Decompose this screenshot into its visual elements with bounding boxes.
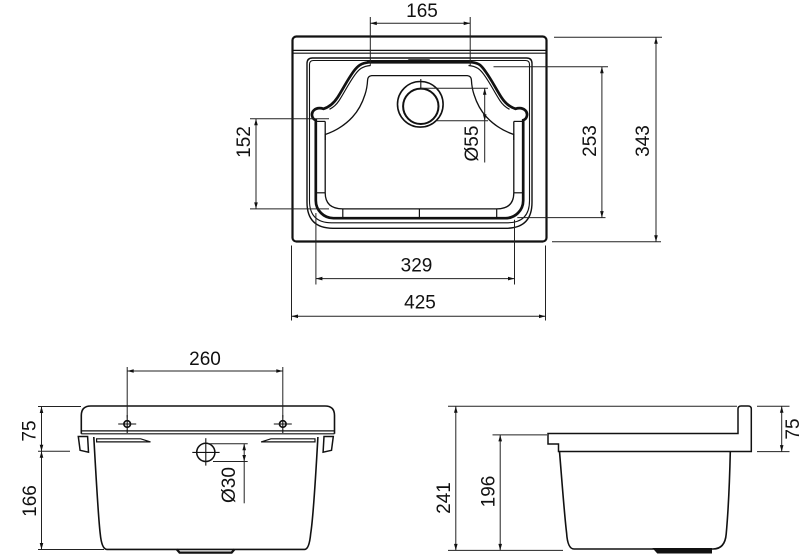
svg-text:241: 241 [434, 482, 455, 514]
svg-text:Ø30: Ø30 [219, 467, 240, 503]
svg-text:343: 343 [633, 125, 654, 157]
svg-text:329: 329 [401, 256, 433, 277]
svg-text:152: 152 [234, 126, 255, 158]
svg-text:75: 75 [19, 420, 40, 441]
svg-text:75: 75 [783, 418, 800, 439]
svg-text:166: 166 [20, 485, 41, 517]
svg-text:196: 196 [479, 476, 500, 508]
svg-text:260: 260 [189, 349, 221, 370]
svg-text:425: 425 [404, 293, 436, 314]
svg-text:Ø55: Ø55 [462, 126, 483, 162]
svg-text:165: 165 [406, 1, 438, 22]
svg-text:253: 253 [580, 125, 601, 157]
